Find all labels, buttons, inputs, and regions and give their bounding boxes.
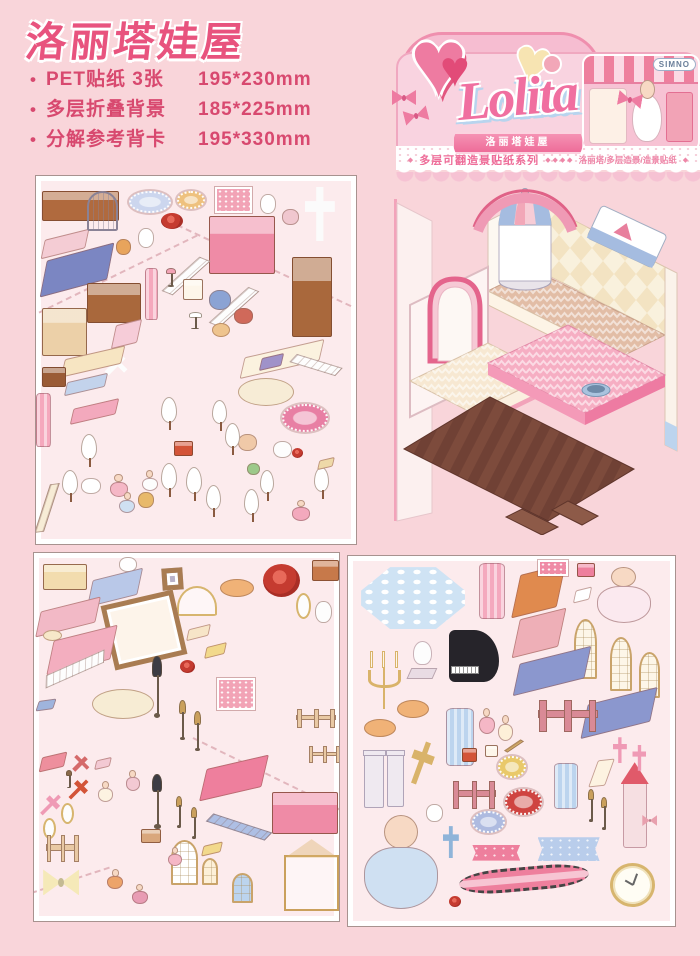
sticker-sewing-machine-blue [209, 290, 231, 310]
sticker-table-round-peach [220, 579, 254, 597]
sticker-lamp-gold [587, 789, 596, 822]
sticker-swirl-ribbon [35, 483, 60, 533]
sticker-lamp-gold [174, 796, 183, 828]
shop-shelf [666, 92, 693, 143]
sticker-lamp-mini [65, 770, 74, 788]
sticker-tree [161, 463, 177, 490]
brand-badge: SIMNO [653, 58, 696, 71]
spec-label: PET贴纸 3张 [46, 64, 198, 91]
sticker-doily-lace-blue [129, 191, 171, 213]
sticker-plant-green [247, 463, 260, 475]
sticker-slab-yellow [204, 642, 227, 659]
bow-icon [392, 90, 416, 105]
sticker-curtain-pink [145, 268, 158, 320]
spec-size: 195*230mm [198, 69, 312, 91]
sticker-candelabra [368, 645, 401, 709]
sticker-armchair [238, 434, 257, 451]
sticker-greenhouse [284, 855, 339, 911]
sticker-lamp-gold [190, 807, 199, 839]
sticker-piano [449, 630, 499, 682]
sticker-counter-pink [272, 792, 338, 834]
sticker-molding-blue [205, 813, 272, 840]
sticker-wardrobe [292, 257, 332, 337]
sticker-bed-pink [199, 754, 269, 801]
sticker-sign-dots [217, 678, 255, 710]
sticker-window-cream [202, 858, 218, 885]
spec-line: • 分解参考背卡 195*330mm [30, 124, 360, 154]
sticker-cat-pink [132, 884, 148, 904]
sticker-pillar [364, 752, 384, 808]
sticker-banner-blue [554, 763, 578, 809]
spec-size: 195*330mm [198, 129, 312, 151]
sticker-chair-white [315, 601, 332, 623]
sticker-pillow-blue [538, 837, 600, 861]
spec-label: 多层折叠背景 [46, 94, 198, 121]
sticker-mannequin [479, 708, 495, 734]
sticker-window-oval [61, 803, 74, 824]
sticker-bow-yellow [43, 869, 79, 895]
room-illustration [372, 183, 700, 535]
sticker-sign-dots [538, 560, 568, 576]
sticker-pillow-red [39, 752, 68, 773]
sticker-doily-gold [177, 191, 205, 209]
sticker-teddy-lamp [116, 239, 131, 255]
sticker-floor-octagon [361, 567, 465, 629]
sticker-cross-pink [613, 737, 627, 763]
sticker-tree [244, 489, 259, 515]
sticker-shelf-pink [209, 216, 275, 274]
sticker-side-table [42, 367, 66, 387]
sticker-mannequin [498, 715, 513, 741]
sticker-doily-red [505, 789, 542, 815]
series-title: 多层可翻造景贴纸系列 [419, 152, 539, 168]
sticker-tree [186, 467, 202, 494]
sticker-slab-cream [186, 623, 211, 641]
sticker-wreath-flower [498, 756, 526, 778]
sticker-table-peach [364, 719, 396, 737]
sticker-cat-orange [107, 869, 123, 889]
sticker-cube-red [462, 748, 477, 762]
sticker-pillar-fence [309, 744, 341, 764]
sticker-sheet-1 [35, 175, 357, 545]
sticker-door-arch-blue [232, 873, 253, 903]
diamond-icon: ◆ [408, 156, 413, 164]
sticker-pillar-fence [296, 708, 336, 730]
sticker-basket [138, 492, 154, 508]
sticker-slab-blue [64, 373, 108, 397]
sticker-cross-blue [443, 826, 459, 858]
sticker-tree [314, 467, 329, 492]
bullet-icon: • [30, 100, 46, 120]
series-tags: 洛丽塔/多层造景/造景贴纸 [579, 154, 677, 166]
sticker-tree [161, 397, 177, 423]
sticker-doll-girl [364, 815, 438, 909]
sticker-doily-blue [472, 811, 505, 833]
sticker-slab-pink-sm [94, 757, 112, 770]
sticker-bear [282, 209, 299, 225]
sticker-key-gold [503, 740, 523, 753]
sticker-pouf-round [238, 378, 294, 406]
sticker-rug-floral [111, 319, 142, 349]
sticker-street-lamp [150, 774, 165, 829]
sticker-chair-white [273, 441, 292, 458]
sticker-stool-pink [577, 563, 595, 577]
sticker-lamb [138, 228, 154, 248]
sticker-banner-cream [588, 758, 615, 787]
sticker-cube-white [485, 745, 498, 757]
sticker-window-pink [479, 563, 505, 619]
sticker-ribbon-banner [472, 845, 520, 861]
sticker-mirror-oval [296, 593, 311, 619]
sticker-frame-gray [161, 567, 183, 590]
sticker-figure-angel [98, 781, 113, 802]
sticker-figure-maid [126, 770, 140, 791]
spec-size: 185*225mm [198, 99, 312, 121]
sticker-clock [610, 863, 655, 907]
sticker-coffee-table [43, 564, 87, 590]
sticker-window-arch [610, 637, 632, 691]
spec-list: • PET贴纸 3张 195*230mm • 多层折叠背景 185*225mm … [30, 64, 360, 154]
sticker-tree [206, 485, 221, 510]
bullet-icon: • [30, 70, 46, 90]
sticker-slab-gold-sm [201, 841, 223, 856]
sticker-rose-red [263, 564, 300, 597]
sticker-birdcage [87, 191, 118, 231]
sticker-fence-long [538, 697, 598, 735]
sticker-pillar [387, 752, 404, 807]
product-page: 洛丽塔娃屋 • PET贴纸 3张 195*230mm • 多层折叠背景 185*… [0, 0, 700, 956]
sticker-fence-small [453, 778, 496, 812]
product-banner: ♥ ♥ ♥ SIMNO Lolita 洛丽塔娃屋 ◆ 多层可翻造景贴纸系列 ◆ … [396, 32, 700, 182]
spec-label: 分解参考背卡 [46, 124, 198, 151]
sticker-sign-dots [215, 187, 252, 213]
sticker-sheet-3 [347, 555, 676, 927]
sticker-bench [141, 829, 161, 843]
sticker-cabinet-cream [42, 308, 87, 356]
sticker-sheet-2 [33, 552, 340, 922]
sticker-fence [46, 833, 79, 865]
sticker-wheel-pink [282, 404, 328, 432]
logo-sub-badge: 洛丽塔娃屋 [452, 132, 584, 154]
spec-line: • 多层折叠背景 185*225mm [30, 94, 360, 124]
sticker-dress-white [142, 470, 158, 491]
sticker-slab-white [572, 587, 591, 604]
sticker-puff-white [81, 478, 101, 494]
sticker-runner-pink [70, 398, 120, 425]
page-title: 洛丽塔娃屋 [23, 8, 249, 68]
sticker-glass-dome [177, 586, 217, 616]
sticker-rose-hanger [161, 213, 183, 229]
sticker-lamp-stand [193, 711, 203, 751]
sticker-rose-bud [180, 660, 195, 673]
sticker-tree [81, 434, 97, 460]
sticker-bow-small [642, 815, 657, 826]
sticker-scissors [403, 739, 439, 788]
diamond-icons: ◆ ◆ ◆ ◆ [545, 156, 572, 164]
bullet-icon: • [30, 130, 46, 150]
sticker-girl-sticker [597, 567, 651, 623]
sticker-rose-ball [449, 896, 461, 907]
sticker-corner-shelf-red [174, 441, 193, 456]
sticker-film-strip [458, 861, 590, 896]
sticker-tree [62, 470, 78, 495]
sticker-sewing-machine-red [234, 308, 253, 324]
sticker-dress-dotted [292, 500, 310, 521]
sticker-stool-gold [212, 323, 230, 337]
sticker-bust-statue [407, 641, 438, 679]
spec-line: • PET贴纸 3张 195*230mm [30, 64, 360, 94]
diamond-icon: ◆ [683, 156, 688, 164]
sticker-cross-white [305, 187, 335, 241]
sticker-bunny [260, 194, 276, 214]
series-row: ◆ 多层可翻造景贴纸系列 ◆ ◆ ◆ ◆ 洛丽塔/多层造景/造景贴纸 ◆ [396, 152, 700, 168]
sticker-desk [87, 283, 141, 323]
sticker-curtain-left [36, 393, 51, 447]
sticker-doll-dress-blue [119, 492, 135, 513]
sticker-book-blue [35, 699, 56, 712]
sticker-box-white [183, 279, 203, 300]
sticker-doll-mini [168, 847, 182, 866]
sticker-lamp-stand [177, 700, 187, 740]
sticker-table-peach [397, 700, 429, 718]
sticker-tree [260, 470, 274, 494]
sticker-rose-small [292, 448, 303, 458]
sticker-lamp-pink [164, 268, 178, 287]
sticker-lamp-gold [600, 797, 609, 830]
sticker-stool-white [186, 312, 204, 329]
sticker-tree [225, 423, 240, 448]
sticker-lamp-post [150, 656, 164, 718]
sticker-tree [212, 400, 227, 424]
sticker-fireplace [312, 560, 339, 581]
sticker-table-round-big [92, 689, 154, 719]
